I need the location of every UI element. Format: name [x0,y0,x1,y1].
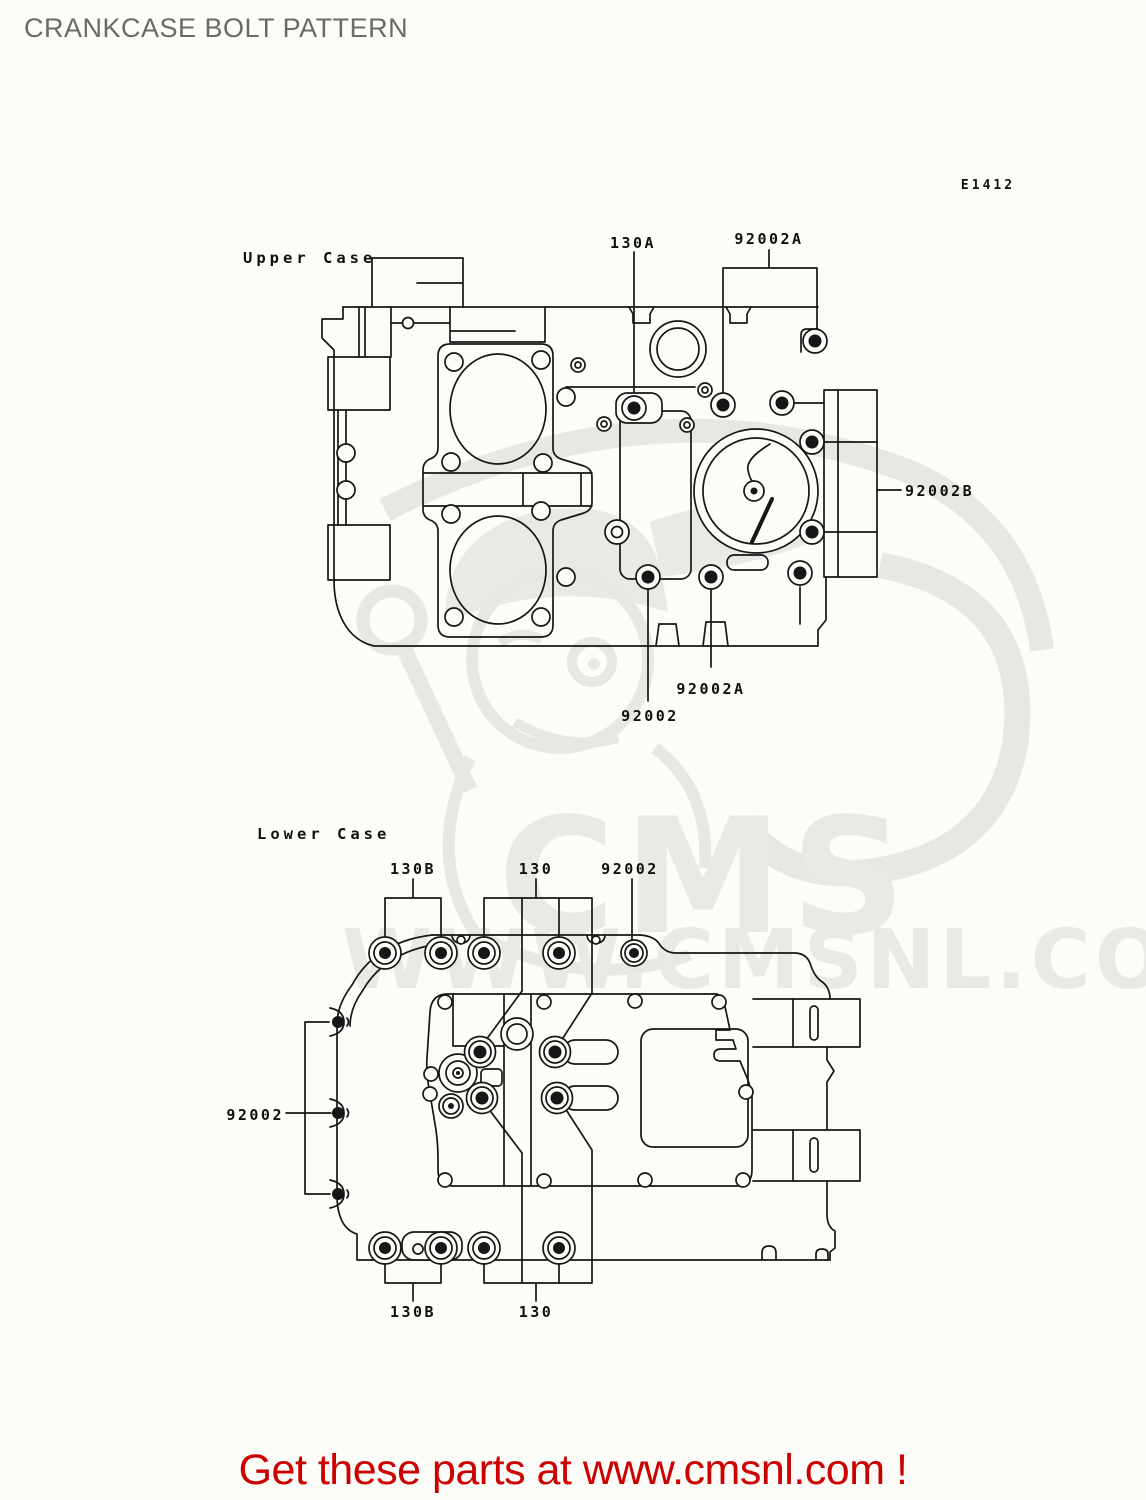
gasket-hole [442,453,460,471]
lower-case-label: Lower Case [257,825,390,843]
pan-inner-rect [641,1029,748,1147]
callout-92002-left: 92002 [226,1106,284,1124]
footer-banner-link[interactable]: Get these parts at www.cmsnl.com ! [0,1446,1146,1495]
cylinder-bore-1 [450,354,546,464]
small-hole [413,1244,423,1254]
clutch-center-dot [751,488,758,495]
bolt-core [379,1242,391,1254]
bolt-core [553,1242,565,1254]
pan-journal-outer [501,1018,533,1050]
bolt-core [379,947,391,959]
dowel-hole [605,520,629,544]
bolt-core [776,397,789,410]
gasket-hole [557,388,575,406]
bolt-core [806,526,819,539]
upper-notch-1 [629,307,654,323]
tab-bolt-core [332,1016,344,1028]
pan-rim-hole [438,1173,452,1187]
upper-left-bracket-2 [328,525,390,580]
gasket-hole [534,454,552,472]
pan-rim-hole [537,995,551,1009]
gasket-hole [557,568,575,586]
pan-rim-hole [712,995,726,1009]
upper-left-ribs [338,410,346,525]
watermark-pupil [588,658,600,670]
callout-130b-top: 130B [390,860,436,878]
bolt-core [435,947,447,959]
dowel-hole [597,417,611,431]
pan-rim-hole [736,1173,750,1187]
upper-case-label: Upper Case [243,249,376,267]
lower-feet [762,1246,828,1260]
pan-rim-hole [739,1085,753,1099]
callout-92002a-bottom: 92002A [676,680,745,698]
bolt-core [474,1046,487,1059]
tab-bolt-core [332,1188,344,1200]
pan-rim-hole [424,1067,438,1081]
callout-130b-bottom: 130B [390,1303,436,1321]
leader-130b-bottom [385,1262,441,1301]
tab-bolt-core [332,1107,344,1119]
bolt-core [629,948,639,958]
dowel-hole [571,358,585,372]
leader-92002a-top [723,250,818,392]
breather-outer [650,321,706,377]
lower-right-edge [827,1047,835,1260]
lower-right-slot-1 [810,1006,818,1040]
gasket-hole [532,351,550,369]
upper-notch-2 [726,307,751,323]
bolt-core [806,436,819,449]
gasket-hole [442,505,460,523]
callout-92002a-top: 92002A [734,230,803,248]
gasket-hole [445,353,463,371]
leader-92002-left [286,1022,331,1194]
callout-92002-top: 92002 [601,860,659,878]
dowel-hole [680,418,694,432]
bolt-core [705,571,718,584]
leader-130-bottom [484,1105,592,1301]
callout-92002b-right: 92002B [905,482,974,500]
bolt-core [476,1092,489,1105]
page-title: CRANKCASE BOLT PATTERN [24,13,408,44]
bolt-core [717,399,730,412]
pan-rim-hole [438,995,452,1009]
upper-left-tower [322,307,391,580]
bolt-core [628,402,641,415]
bolt-core [435,1242,447,1254]
gasket-hole [445,608,463,626]
upper-top-boss-b [450,307,545,342]
bolt-core [478,947,490,959]
lower-right-slot-2 [810,1138,818,1172]
small-hole [457,936,465,944]
upper-feet [656,622,728,646]
gasket-hole [532,502,550,520]
watermark-wink-eye [500,635,542,643]
diagram-canvas: CMS WWW.CMSNL.COM [0,0,1146,1500]
bolt-core [549,1046,562,1059]
pan-rim-hole [537,1174,551,1188]
gasket-hole [532,608,550,626]
upper-left-bracket-1 [328,357,390,410]
upper-left-hole-2 [337,481,355,499]
upper-case-drawing [322,250,901,701]
oil-seat-dot [456,1071,460,1075]
lower-right-connectors [753,999,793,1181]
upper-left-hole-1 [337,444,355,462]
upper-right-block [824,390,877,577]
callout-130-top: 130 [519,860,554,878]
upper-link-hole [403,318,414,329]
pan-rim-hole [628,994,642,1008]
oil-seat2-dot [448,1103,454,1109]
bolt-core [809,335,822,348]
page: CMS WWW.CMSNL.COM [0,0,1146,1500]
diagram-code: E1412 [961,178,1015,193]
small-hole [592,936,600,944]
upper-top-boss-a [372,258,463,307]
pan-rim-hole [423,1087,437,1101]
lower-right-bracket-2 [793,1130,860,1181]
callout-92002-bottom: 92002 [621,707,679,725]
bolt-core [478,1242,490,1254]
pan-rim-hole [638,1173,652,1187]
dowel-hole [698,383,712,397]
bolt-core [551,1092,564,1105]
callout-130-bottom: 130 [519,1303,554,1321]
bolt-core [794,567,807,580]
bolt-core [553,947,565,959]
bolt-core [642,571,655,584]
callout-130a-top: 130A [610,234,656,252]
watermark-wrench-head [363,591,421,649]
